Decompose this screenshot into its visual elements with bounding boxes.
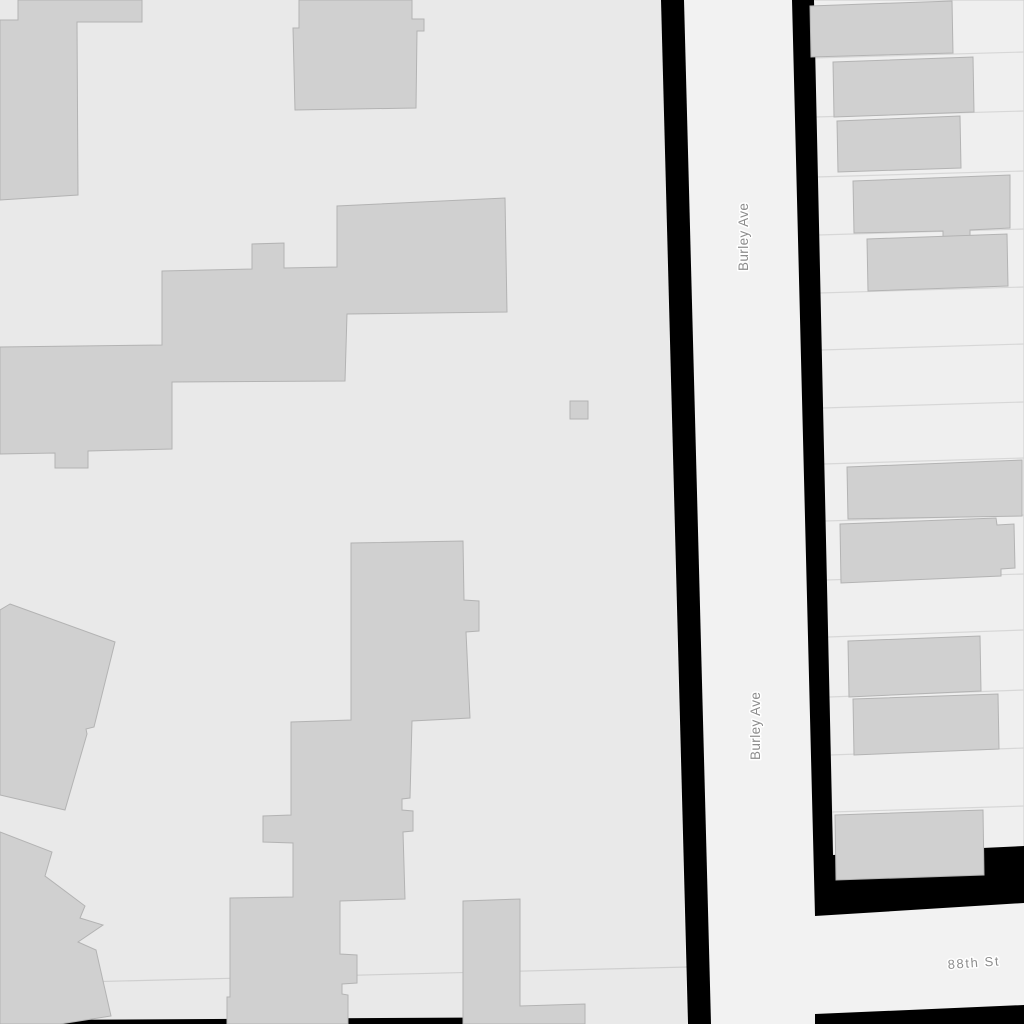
building-east-row-7 bbox=[840, 518, 1015, 583]
street-label-burley-ave: Burley Ave bbox=[736, 203, 751, 271]
building-east-row-5 bbox=[867, 234, 1008, 291]
map-svg: Burley AveBurley Ave88th St bbox=[0, 0, 1024, 1024]
building-east-row-2 bbox=[833, 57, 974, 117]
building-north-middle bbox=[293, 0, 424, 110]
building-east-row-8 bbox=[848, 636, 981, 697]
building-east-row-1 bbox=[810, 1, 953, 57]
building-east-row-6 bbox=[847, 460, 1022, 519]
building-east-row-4 bbox=[853, 175, 1010, 237]
building-east-corner bbox=[835, 810, 984, 880]
building-small-square bbox=[570, 401, 588, 419]
building-east-row-3 bbox=[837, 116, 961, 172]
building-east-row-9 bbox=[853, 694, 999, 755]
map-canvas[interactable]: Burley AveBurley Ave88th St bbox=[0, 0, 1024, 1024]
street-label-burley-ave: Burley Ave bbox=[748, 692, 763, 760]
